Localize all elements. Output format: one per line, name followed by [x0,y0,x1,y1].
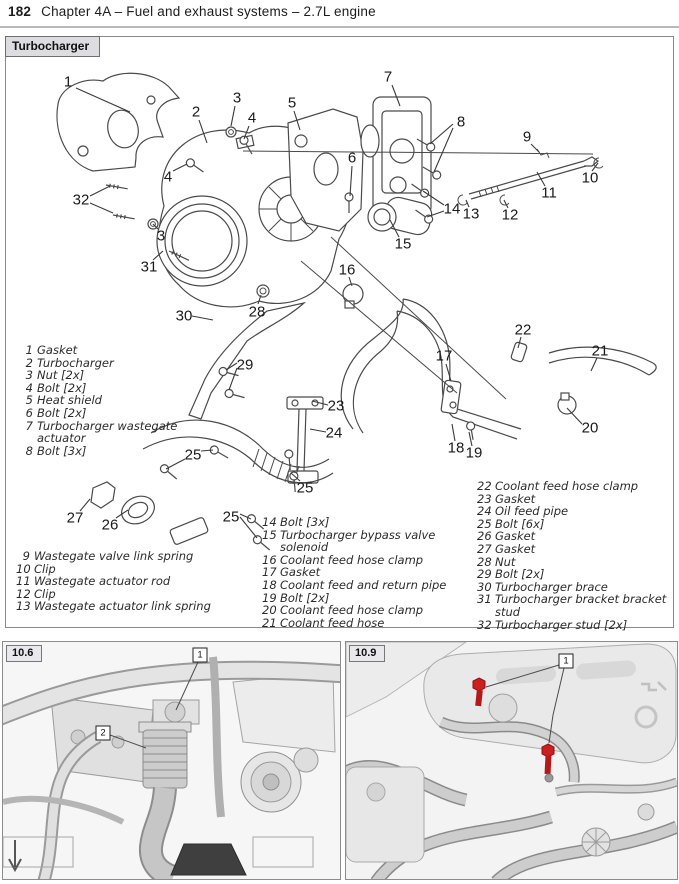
header-divider [0,26,679,28]
legend-item: 1Gasket [25,344,193,357]
chapter-title: Chapter 4A – Fuel and exhaust systems – … [41,4,376,19]
legend-column: 9Wastegate valve link spring10Clip11Wast… [16,550,221,613]
legend-item: 21Coolant feed hose [262,617,472,630]
legend-column: 1Gasket2Turbocharger3Nut [2x]4Bolt [2x]5… [25,344,193,457]
legend-item: 15Turbocharger bypass valve solenoid [262,529,472,554]
legend-item: 8Bolt [3x] [25,445,193,458]
legend-item: 32Turbocharger stud [2x] [477,619,677,632]
legend-item: 14Bolt [3x] [262,516,472,529]
legend-item: 13Wastegate actuator link spring [16,600,221,613]
legend-item: 11Wastegate actuator rod [16,575,221,588]
photo-label-10-6: 10.6 [6,645,42,662]
legend-item: 6Bolt [2x] [25,407,193,420]
manual-page: { "page": { "number": "182", "title": "C… [0,0,679,884]
legend-item: 22Coolant feed hose clamp [477,480,677,493]
legend-item: 3Nut [2x] [25,369,193,382]
legend-item: 20Coolant feed hose clamp [262,604,472,617]
legend-item: 31Turbocharger bracket bracket stud [477,593,677,618]
page-header: 182Chapter 4A – Fuel and exhaust systems… [8,4,671,26]
photo-label-10-9: 10.9 [349,645,385,662]
legend-item: 29Bolt [2x] [477,568,677,581]
legend-column: 22Coolant feed hose clamp23Gasket24Oil f… [477,480,677,631]
legend-item: 27Gasket [477,543,677,556]
legend-item: 9Wastegate valve link spring [16,550,221,563]
legend-item: 18Coolant feed and return pipe [262,579,472,592]
legend-column: 14Bolt [3x]15Turbocharger bypass valve s… [262,516,472,629]
page-number: 182 [8,4,31,19]
figure-tab-label: Turbocharger [5,36,100,57]
engine-bay-illustration-10-6 [3,642,340,879]
legend-item: 7Turbocharger wastegate actuator [25,420,193,445]
photo-panel-10-6: 10.6 [2,641,341,880]
engine-bay-illustration-10-9 [346,642,677,879]
photo-panel-10-9: 10.9 [345,641,678,880]
legend-item: 24Oil feed pipe [477,505,677,518]
